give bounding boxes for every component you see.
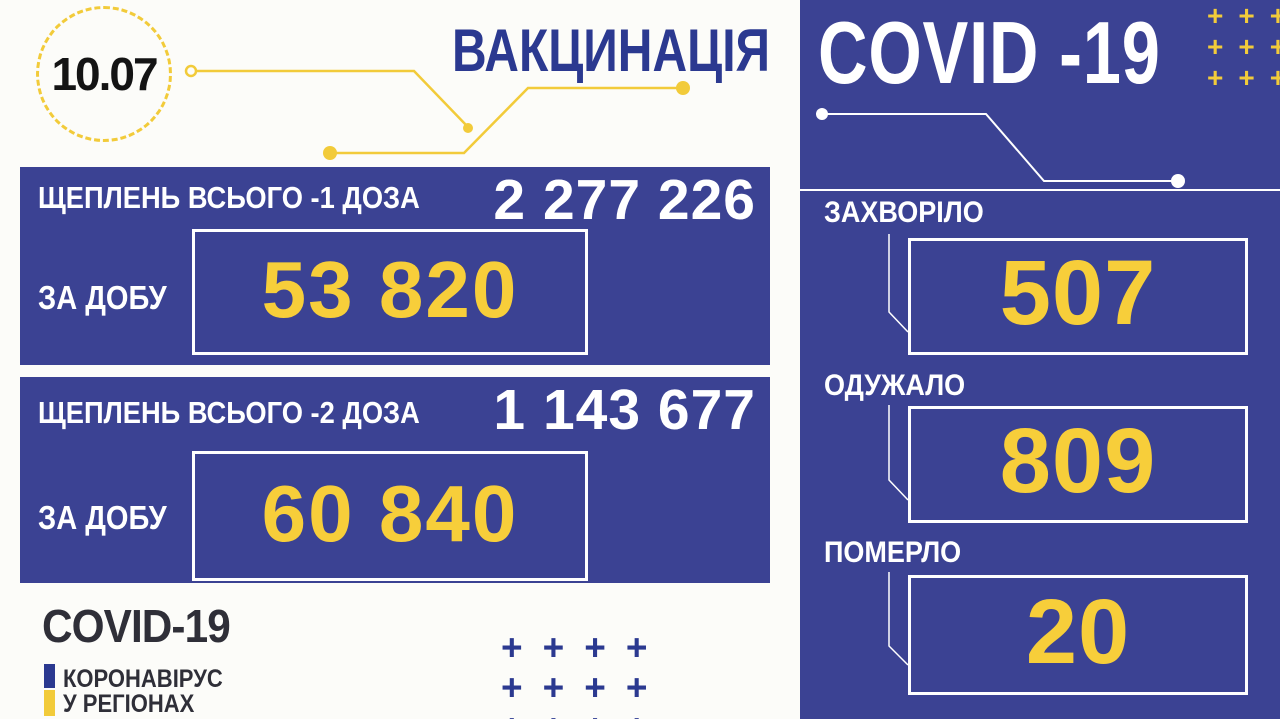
plus-icon: + (584, 709, 606, 719)
covid-vaccination-infographic: 10.07 ВАКЦИНАЦІЯ ЩЕПЛЕНЬ ВСЬОГО -1 ДОЗА … (0, 0, 1280, 719)
plus-icon: + (1207, 31, 1223, 62)
page-title: ВАКЦИНАЦІЯ (452, 16, 770, 85)
stat-box-died: 20 (908, 575, 1248, 695)
dose2-daily-label: ЗА ДОБУ (38, 499, 167, 537)
dose2-total-value: 1 143 677 (493, 377, 756, 443)
covid-stats-panel: COVID -19 + + + + + + + + + (800, 0, 1280, 719)
plus-icon: + (1238, 62, 1254, 93)
dose1-daily-value: 53 820 (262, 244, 519, 340)
plus-icon: + (1270, 62, 1280, 93)
plus-icon: + (501, 709, 523, 719)
plus-icon: + (1238, 31, 1254, 62)
plus-icon: + (626, 669, 648, 709)
plus-icon: + (1207, 62, 1223, 93)
covid-panel-title: COVID -19 (818, 2, 1161, 104)
stat-value-died: 20 (1026, 580, 1130, 691)
plus-icon: + (501, 629, 523, 669)
stat-label-recovered: ОДУЖАЛО (824, 369, 965, 403)
plus-row: + + + (1207, 31, 1280, 62)
plus-icon: + (1270, 31, 1280, 62)
brand-title: COVID-19 (42, 599, 230, 653)
date-badge: 10.07 (36, 6, 172, 142)
plus-icon: + (1270, 0, 1280, 31)
plus-row: + + + + (501, 629, 647, 669)
stat-label-sick: ЗАХВОРІЛО (824, 196, 984, 230)
plus-grid-bottom: + + + + + + + + + + + + (501, 629, 647, 719)
dose1-daily-box: 53 820 (192, 229, 588, 355)
plus-icon: + (543, 669, 565, 709)
dose2-daily-value: 60 840 (262, 468, 519, 564)
plus-row: + + + + (501, 669, 647, 709)
plus-icon: + (543, 709, 565, 719)
stat-box-recovered: 809 (908, 406, 1248, 523)
plus-icon: + (584, 669, 606, 709)
brand-subtitle-line2: У РЕГІОНАХ (63, 690, 194, 719)
date-text: 10.07 (51, 47, 156, 101)
plus-row: + + + + (501, 709, 647, 719)
plus-icon: + (1207, 0, 1223, 31)
dose2-daily-box: 60 840 (192, 451, 588, 581)
plus-icon: + (1238, 0, 1254, 31)
plus-row: + + + (1207, 62, 1280, 93)
stat-value-recovered: 809 (1000, 409, 1157, 520)
stat-label-died: ПОМЕРЛО (824, 536, 961, 570)
plus-grid-top-right: + + + + + + + + + (1207, 0, 1280, 93)
dose1-total-value: 2 277 226 (493, 167, 756, 233)
flag-bar-yellow (44, 690, 55, 716)
flag-bar-blue (44, 664, 55, 688)
stat-box-sick: 507 (908, 238, 1248, 355)
plus-icon: + (543, 629, 565, 669)
dose1-daily-label: ЗА ДОБУ (38, 279, 167, 317)
vaccination-panel-dose1: ЩЕПЛЕНЬ ВСЬОГО -1 ДОЗА 2 277 226 ЗА ДОБУ… (20, 167, 770, 365)
dose1-total-label: ЩЕПЛЕНЬ ВСЬОГО -1 ДОЗА (38, 180, 420, 216)
dose2-total-label: ЩЕПЛЕНЬ ВСЬОГО -2 ДОЗА (38, 395, 420, 431)
plus-icon: + (501, 669, 523, 709)
vaccination-panel-dose2: ЩЕПЛЕНЬ ВСЬОГО -2 ДОЗА 1 143 677 ЗА ДОБУ… (20, 377, 770, 583)
plus-icon: + (626, 709, 648, 719)
plus-icon: + (626, 629, 648, 669)
plus-icon: + (584, 629, 606, 669)
stat-value-sick: 507 (1000, 241, 1157, 352)
plus-row: + + + (1207, 0, 1280, 31)
